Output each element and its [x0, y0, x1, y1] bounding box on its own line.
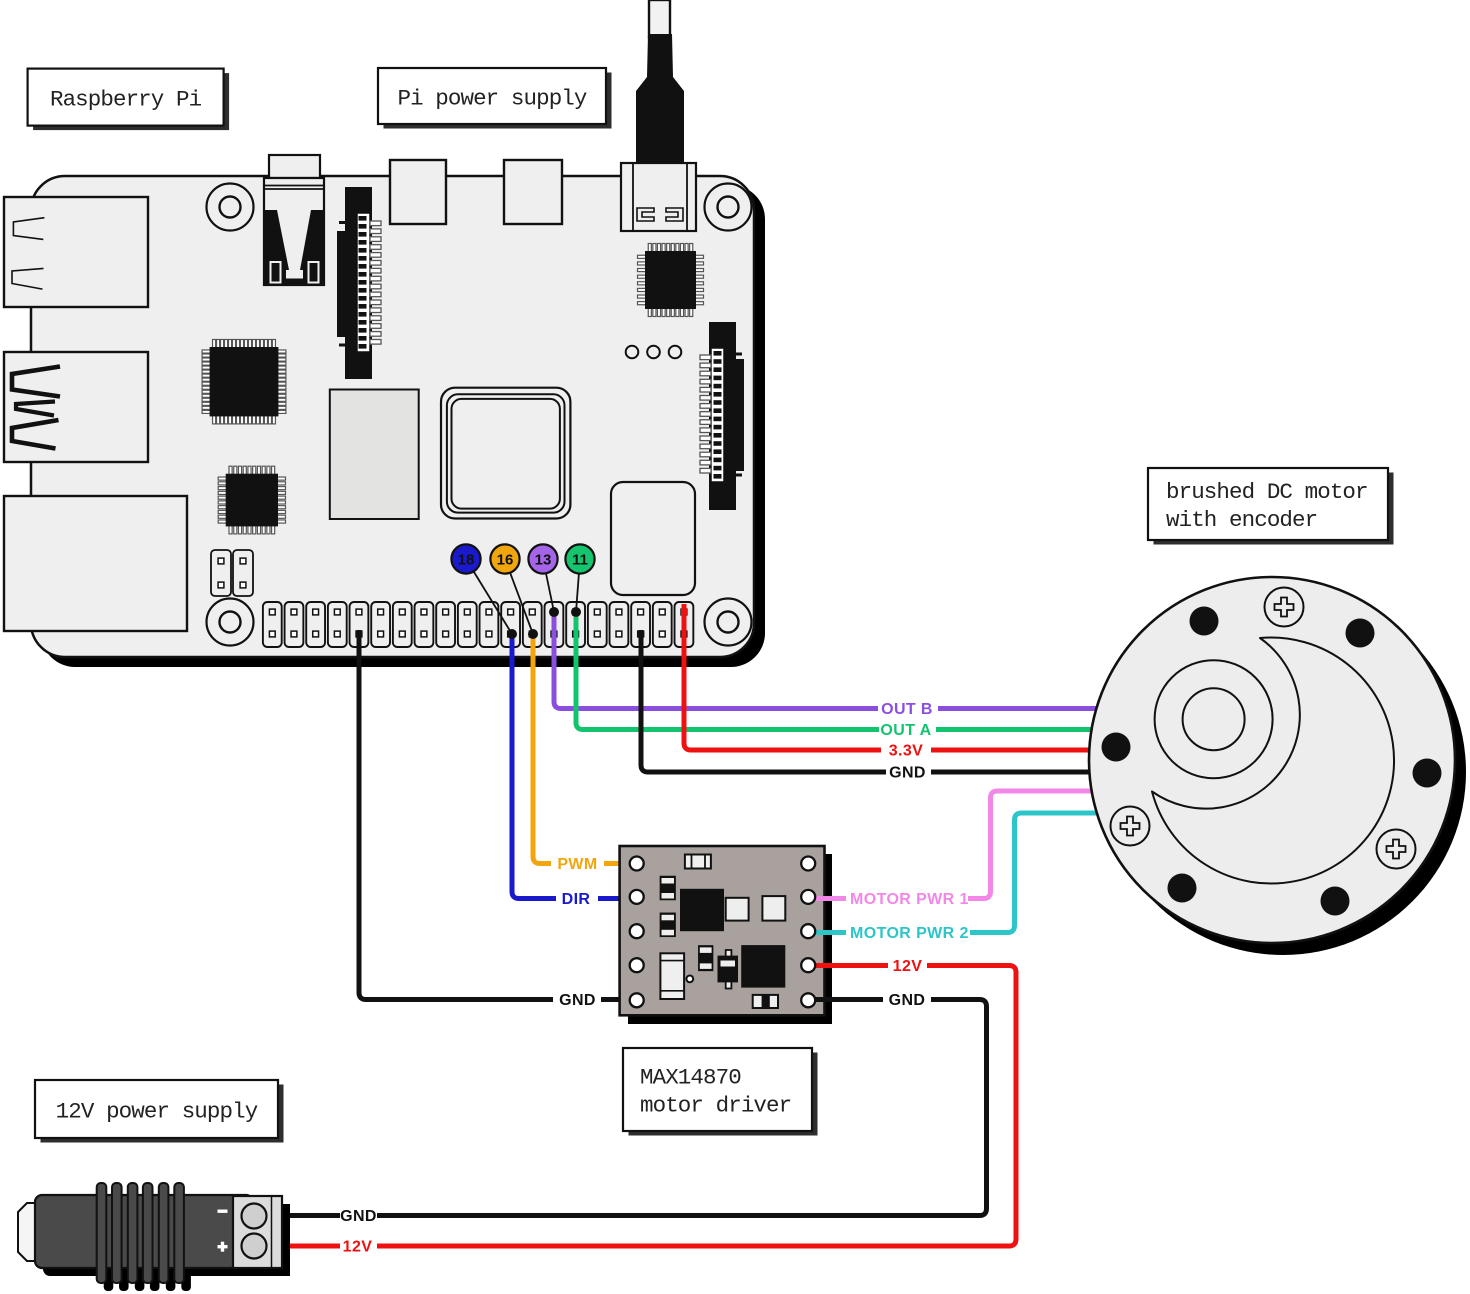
svg-text:12V: 12V — [893, 958, 923, 975]
svg-text:brushed DC motor: brushed DC motor — [1166, 479, 1368, 505]
svg-text:OUT B: OUT B — [881, 701, 933, 718]
svg-text:MOTOR PWR 2: MOTOR PWR 2 — [850, 925, 969, 942]
svg-text:GND: GND — [559, 992, 596, 1009]
svg-text:12V: 12V — [343, 1239, 373, 1256]
svg-text:13: 13 — [535, 551, 552, 568]
svg-text:GND: GND — [340, 1208, 377, 1225]
svg-text:GND: GND — [889, 765, 926, 782]
svg-text:18: 18 — [458, 551, 475, 568]
svg-text:Pi power supply: Pi power supply — [397, 86, 586, 112]
svg-text:11: 11 — [572, 551, 588, 568]
svg-text:motor driver: motor driver — [640, 1093, 791, 1119]
svg-text:MAX14870: MAX14870 — [640, 1065, 741, 1091]
svg-text:12V power supply: 12V power supply — [56, 1099, 258, 1125]
svg-text:3.3V: 3.3V — [889, 743, 924, 760]
svg-text:16: 16 — [497, 551, 514, 568]
svg-text:OUT A: OUT A — [880, 722, 931, 739]
svg-text:MOTOR PWR 1: MOTOR PWR 1 — [850, 891, 969, 908]
svg-text:with encoder: with encoder — [1166, 507, 1317, 533]
svg-text:DIR: DIR — [562, 891, 591, 908]
svg-text:PWM: PWM — [557, 856, 597, 873]
svg-text:GND: GND — [889, 992, 926, 1009]
svg-text:Raspberry Pi: Raspberry Pi — [50, 87, 202, 113]
